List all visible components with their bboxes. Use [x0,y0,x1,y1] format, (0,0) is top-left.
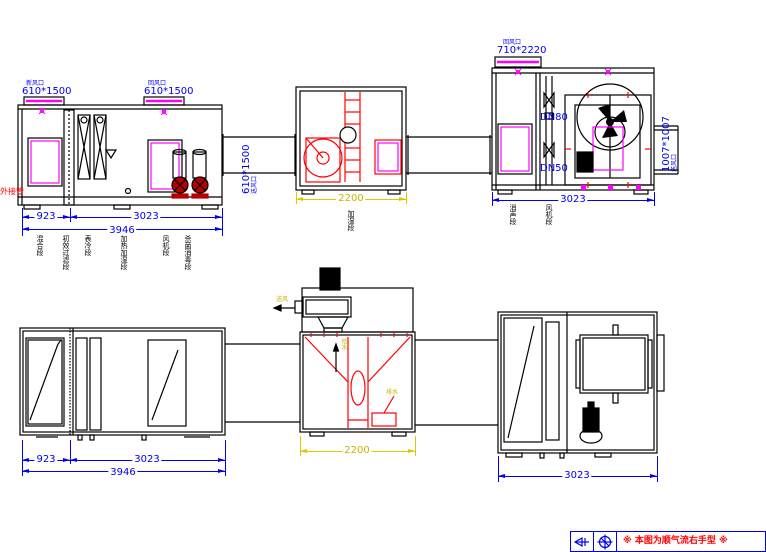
pipe-dn80-label: DN80 [540,113,568,123]
cad-drawing-canvas: 新风口 610*1500 回风口 610*1500 回风口 710*2220 D… [0,0,766,552]
side-note-red: 外接管 [0,188,24,196]
section-divider [70,328,73,435]
spray-hopper-internals [305,333,410,428]
filter-strip [546,322,559,440]
dim-923-plan: 923 [34,455,57,465]
extension-line [225,440,226,476]
outlet-size-vertical-label: 1007*1007 送风口 [662,116,678,172]
blower-motor [320,268,340,290]
base-markers [581,185,641,190]
section-label-2: 初效过滤段 [62,235,69,270]
crosshair-target-icon [597,534,613,550]
fan-housing-top-view [576,325,652,403]
section-arrow-icon [573,535,591,549]
dim-2200-top: 2200 [336,194,365,204]
unit-casing [20,328,225,440]
note-blower-outlet: 送风 [276,297,288,303]
title-block-symbol-cell-2 [594,532,617,551]
extension-line-yellow [406,192,407,204]
section-divider [64,110,74,205]
note-drain: 排水 [386,390,398,396]
connecting-duct-right [222,134,296,176]
section-label-1: 混合段 [36,235,43,256]
humidifier-elevation-drawing [290,80,495,205]
section-label-6: 杀菌消毒段 [184,235,191,270]
dim-3023-plan: 3023 [132,455,161,465]
connecting-duct-left [415,340,498,425]
funnel-symbol [106,150,116,158]
roof-vent-fresh-air [24,97,64,105]
vent2-size-label: 610*1500 [144,87,194,97]
extension-line [657,456,658,482]
unit-casing [492,68,654,194]
filter-panels [78,115,116,179]
outlet-name-text: 送风口 [672,116,678,172]
note-water-supply: 给水 [340,338,346,350]
extension-line [22,208,23,236]
drain-port [126,189,131,194]
right-vent-size-label: 710*2220 [497,46,547,56]
extension-line [222,208,223,236]
lifting-point-marker [515,69,611,75]
duct-size-vertical-label: 610*1500 送风口 [242,144,258,194]
title-block-symbol-cell-1 [571,532,594,551]
damper-panel-left [26,338,64,426]
extension-line-yellow [300,436,301,456]
section-label-3: 表冷段 [84,235,91,256]
damper-panel [504,318,542,442]
connecting-duct-right [406,135,492,175]
roof-vent-return-air [144,97,184,105]
filter-strips [76,338,101,430]
pipe-dn50-label: DN50 [540,164,568,174]
section-label-right-1: 消声段 [509,204,516,225]
vent1-size-label: 610*1500 [22,87,72,97]
roof-vent [495,57,541,67]
top-blower-assembly [274,268,413,332]
dim-3023-right: 3023 [558,195,587,205]
section-label-5: 风机段 [162,235,169,256]
title-block: ※ 本图为顺气流右手型 ※ [570,531,766,552]
round-duct-section [340,127,356,143]
unit-casing [498,312,664,458]
airflow-handing-note: ※ 本图为顺气流右手型 ※ [617,532,765,551]
fan-motor [577,152,593,172]
section-label-right-2: 风机段 [545,204,552,225]
section-label-middle: 加湿段 [347,210,354,231]
access-door [498,124,532,174]
dim-923: 923 [34,212,57,222]
section-label-4: 加热加湿段 [120,235,127,270]
fan-unit-elevation-drawing [486,38,686,203]
fan-motor-top-view [580,402,602,443]
extension-line-yellow [415,436,416,456]
duct-name-text: 送风口 [252,144,258,194]
airflow-arrow [274,305,281,311]
dim-3946-plan: 3946 [108,468,137,478]
access-door-left [28,138,62,186]
humidifier-pumps [172,150,208,199]
damper-panel-right [148,340,186,426]
dim-3023: 3023 [131,212,160,222]
centrifugal-fan [565,84,651,190]
dim-3023-plan-right: 3023 [562,471,591,481]
extension-line [654,192,655,206]
dim-2200-plan: 2200 [342,446,371,456]
unit-casing [18,105,222,209]
extension-line [498,456,499,482]
ahu-left-elevation-drawing [14,78,304,213]
fan-unit-plan-drawing [410,300,680,470]
